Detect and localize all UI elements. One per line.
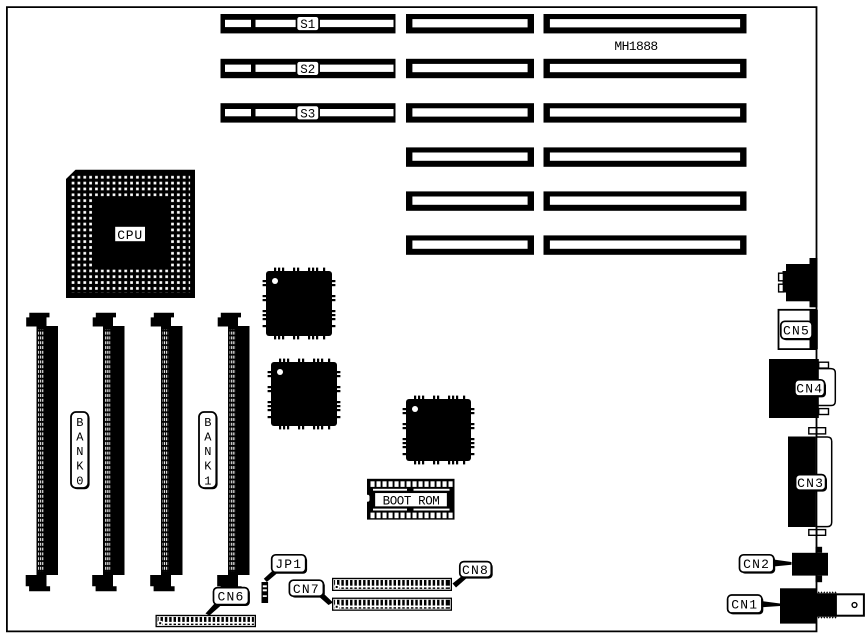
svg-text:S1: S1 — [300, 18, 315, 32]
svg-text:CN6: CN6 — [217, 590, 244, 605]
svg-text:K: K — [204, 460, 212, 474]
svg-text:N: N — [204, 445, 211, 459]
svg-text:A: A — [204, 431, 212, 445]
svg-text:CN5: CN5 — [783, 324, 810, 339]
svg-text:CN2: CN2 — [743, 557, 770, 572]
svg-text:1: 1 — [204, 475, 211, 489]
svg-text:CPU: CPU — [117, 228, 143, 243]
svg-text:CN3: CN3 — [797, 476, 824, 491]
svg-text:CN4: CN4 — [796, 382, 823, 397]
svg-text:MH1888: MH1888 — [614, 39, 657, 54]
svg-text:BOOT ROM: BOOT ROM — [383, 495, 440, 509]
svg-text:B: B — [204, 416, 211, 430]
svg-text:CN1: CN1 — [731, 598, 758, 613]
svg-text:S3: S3 — [300, 107, 315, 121]
svg-text:JP1: JP1 — [275, 557, 302, 572]
svg-text:B: B — [76, 416, 83, 430]
svg-text:CN7: CN7 — [293, 582, 320, 597]
svg-text:0: 0 — [76, 475, 83, 489]
svg-text:CN8: CN8 — [462, 563, 489, 578]
svg-text:K: K — [76, 460, 84, 474]
svg-text:N: N — [76, 445, 83, 459]
svg-text:S2: S2 — [300, 63, 315, 77]
svg-text:A: A — [76, 431, 84, 445]
